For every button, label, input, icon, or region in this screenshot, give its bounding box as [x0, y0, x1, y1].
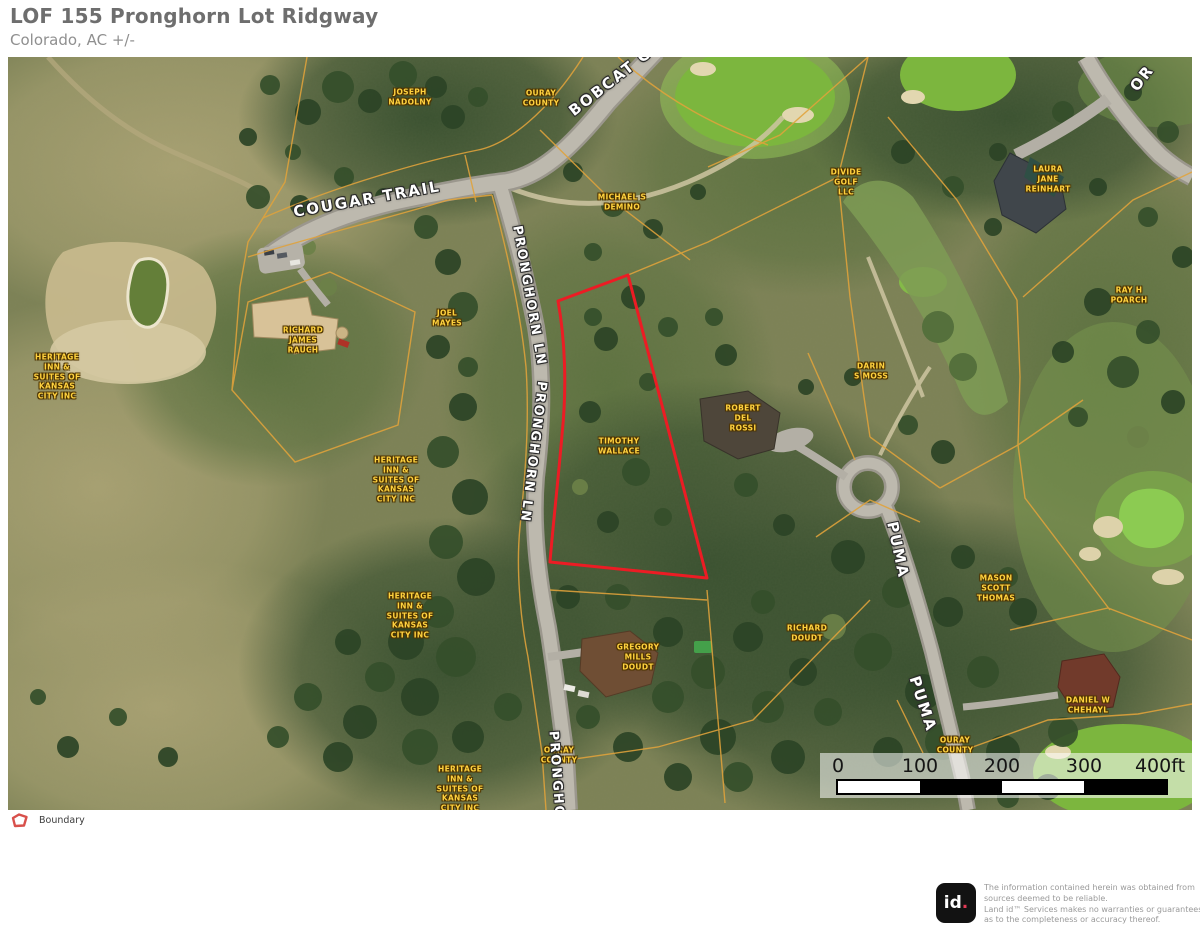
map-canvas[interactable]: JOSEPH NADOLNYOURAY COUNTYMICHAEL S DEMI… [8, 57, 1192, 810]
boundary-legend-label: Boundary [39, 815, 85, 826]
scale-rule [836, 779, 1168, 795]
land-id-logo: id. [936, 883, 976, 923]
scale-tick: 0 [832, 755, 844, 777]
scale-tick: 100 [902, 755, 938, 777]
legend: Boundary [10, 813, 85, 828]
pond [128, 259, 168, 328]
sand-bunker [1079, 547, 1101, 561]
scale-tick: 300 [1066, 755, 1102, 777]
boundary-legend-icon [10, 813, 29, 828]
page: LOF 155 Pronghorn Lot Ridgway Colorado, … [0, 0, 1200, 927]
sand-bunker [901, 90, 925, 104]
sand-bunker [1152, 569, 1184, 585]
pool [694, 641, 712, 653]
footer: id. The information contained herein was… [936, 883, 1200, 926]
scale-bar: 0100200300400ft [820, 753, 1192, 798]
scale-tick: 400ft [1135, 755, 1185, 777]
sand-bunker [690, 62, 716, 76]
aerial-imagery [8, 57, 1192, 810]
scale-tick: 200 [984, 755, 1020, 777]
sand-bunker [1093, 516, 1123, 538]
disclaimer-text: The information contained herein was obt… [984, 883, 1200, 926]
page-subtitle: Colorado, AC +/- [10, 31, 378, 49]
header: LOF 155 Pronghorn Lot Ridgway Colorado, … [10, 4, 378, 49]
page-title: LOF 155 Pronghorn Lot Ridgway [10, 4, 378, 28]
